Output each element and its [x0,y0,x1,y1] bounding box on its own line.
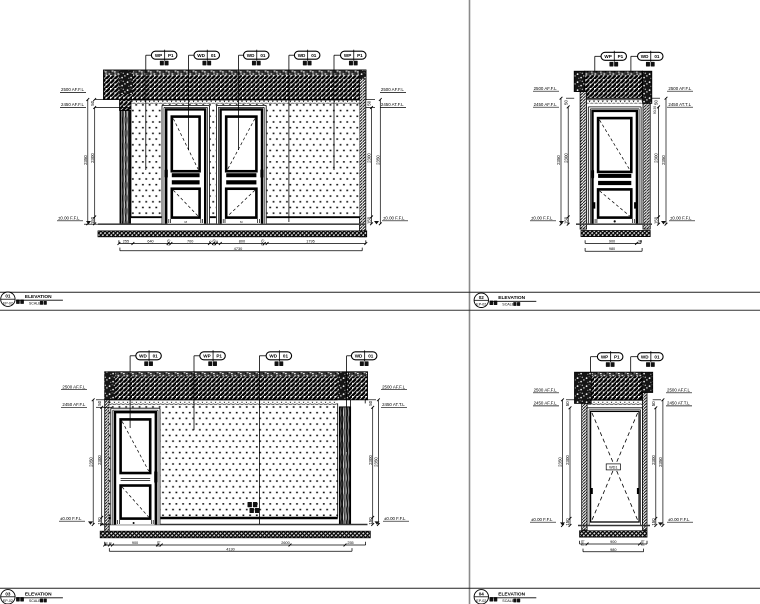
svg-text:±0.00 F.F.L: ±0.00 F.F.L [58,215,80,220]
svg-text:EP-02: EP-02 [3,599,13,603]
svg-text:±0.00 F.F.L: ±0.00 F.F.L [60,516,82,521]
svg-text:01: 01 [260,53,266,58]
svg-text:(50): (50) [640,540,644,546]
svg-text:50: 50 [565,401,570,406]
svg-text:WD1: WD1 [609,466,617,470]
svg-text:WD: WD [269,354,277,359]
svg-text:2350: 2350 [376,155,381,165]
svg-text:WP: WP [604,54,611,59]
svg-text:2350: 2350 [556,155,561,165]
svg-text:EP-02: EP-02 [476,303,486,307]
svg-text:SCALE/: SCALE/ [29,302,42,306]
svg-text:50: 50 [654,100,659,105]
svg-text:2450 AT.T.L: 2450 AT.T.L [667,401,690,406]
svg-text:900: 900 [132,541,138,545]
svg-text:2300: 2300 [97,455,102,465]
svg-text:WP: WP [344,53,351,58]
svg-text:04: 04 [479,591,485,596]
svg-text:WD: WD [641,54,649,59]
svg-text:(50): (50) [156,541,160,547]
svg-text:980: 980 [610,548,616,552]
svg-text:01: 01 [5,294,11,299]
svg-text:2450 AF.F.L: 2450 AF.F.L [61,102,85,107]
svg-text:2450 AT.T.L: 2450 AT.T.L [668,102,691,107]
svg-text:±0.00 F.F.L: ±0.00 F.F.L [531,517,553,522]
svg-text:2500 AF.F.L: 2500 AF.F.L [381,87,405,92]
svg-text:ELEVATION: ELEVATION [498,295,525,301]
svg-text:700: 700 [187,240,193,244]
svg-text:2350: 2350 [374,457,379,467]
svg-text:P1: P1 [216,354,222,359]
svg-text:WP: WP [601,354,608,359]
svg-text:±0.00 F.F.L: ±0.00 F.F.L [531,215,553,220]
svg-text:P1: P1 [168,53,174,58]
svg-text:ELEVATION: ELEVATION [498,592,525,598]
svg-text:EP-02: EP-02 [3,301,13,305]
svg-text:2450 AT.T.L: 2450 AT.T.L [382,402,405,407]
svg-text:75: 75 [108,542,112,546]
svg-text:150: 150 [97,517,102,525]
svg-text:2350: 2350 [558,457,563,467]
svg-text:50: 50 [368,400,373,405]
svg-text:(50): (50) [167,239,171,245]
svg-text:50: 50 [90,100,95,105]
svg-text:EP-02: EP-02 [476,599,486,603]
svg-text:2450 AT.F.L: 2450 AT.F.L [381,102,404,107]
svg-text:150: 150 [367,216,372,224]
svg-text:2500 AF.F.L: 2500 AF.F.L [382,384,406,389]
svg-text:WD: WD [139,354,147,359]
svg-text:255: 255 [123,240,129,244]
svg-text:2350: 2350 [83,155,88,165]
svg-text:(50): (50) [261,239,265,245]
svg-text:01: 01 [368,354,374,359]
svg-text:WP: WP [203,354,210,359]
svg-text:WD: WD [355,354,363,359]
svg-text:(50): (50) [580,540,584,546]
svg-text:01: 01 [654,54,660,59]
svg-text:P1: P1 [614,354,620,359]
svg-text:150: 150 [654,216,659,224]
svg-text:WP: WP [155,53,162,58]
svg-text:2350: 2350 [661,155,666,165]
svg-text:50: 50 [367,100,372,105]
svg-text:2300: 2300 [368,455,373,465]
svg-text:2500 AF.F.L: 2500 AF.F.L [534,387,558,392]
svg-text:150: 150 [565,518,570,526]
svg-text:150: 150 [368,517,373,525]
svg-text:2450 AF.F.L: 2450 AF.F.L [534,401,558,406]
svg-text:WD: WD [298,53,306,58]
svg-text:02: 02 [479,295,485,300]
svg-text:2350: 2350 [88,457,93,467]
svg-text:2300: 2300 [654,153,659,163]
svg-text:2500 AF.F.L: 2500 AF.F.L [667,387,691,392]
svg-text:2300: 2300 [90,153,95,163]
svg-text:640: 640 [147,240,153,244]
svg-text:±0.00 F.F.L: ±0.00 F.F.L [668,517,690,522]
svg-text:255: 255 [347,541,353,545]
svg-text:SCALE/: SCALE/ [502,303,515,307]
svg-text:WD: WD [641,354,649,359]
svg-text:SCALE/: SCALE/ [502,599,515,603]
svg-text:03: 03 [5,591,11,596]
svg-text:150: 150 [563,216,568,224]
svg-text:980: 980 [609,247,615,251]
svg-text:150: 150 [90,216,95,224]
svg-text:75: 75 [215,241,219,245]
svg-text:2300: 2300 [565,455,570,465]
svg-text:2500 AF.F.L: 2500 AF.F.L [62,384,86,389]
svg-text:2300: 2300 [651,455,656,465]
svg-text:WD: WD [247,53,255,58]
svg-text:2300: 2300 [563,153,568,163]
svg-text:30: 30 [638,239,642,243]
svg-text:50: 50 [563,100,568,105]
svg-text:900: 900 [610,540,616,544]
svg-text:01: 01 [153,354,159,359]
svg-text:4130: 4130 [226,547,234,551]
svg-text:2350: 2350 [658,457,663,467]
svg-text:2500 AF.F.L: 2500 AF.F.L [668,86,692,91]
svg-text:2300: 2300 [367,153,372,163]
svg-text:01: 01 [311,53,317,58]
svg-text:ELEVATION: ELEVATION [25,592,52,598]
svg-text:SCALE/: SCALE/ [29,599,42,603]
svg-text:150: 150 [651,518,656,526]
svg-text:50: 50 [651,401,656,406]
svg-text:1795: 1795 [306,240,314,244]
svg-text:90.30: 90.30 [653,106,657,114]
svg-text:P1: P1 [357,53,363,58]
svg-text:01: 01 [654,354,660,359]
svg-text:800: 800 [239,240,245,244]
svg-text:2500 AF.F.L: 2500 AF.F.L [61,87,85,92]
svg-text:2500 AF.F.L: 2500 AF.F.L [534,86,558,91]
svg-text:2450 AF.F.L: 2450 AF.F.L [534,102,558,107]
svg-text:900: 900 [609,239,615,243]
svg-text:P1: P1 [618,54,624,59]
svg-text:±0.00 F.F.L: ±0.00 F.F.L [384,516,406,521]
svg-text:4730: 4730 [234,247,242,251]
svg-text:01: 01 [283,354,289,359]
svg-text:01: 01 [211,53,217,58]
svg-text:WD: WD [197,53,205,58]
svg-text:2600: 2600 [281,541,289,545]
svg-text:50: 50 [97,400,102,405]
svg-text:±0.00 F.F.L: ±0.00 F.F.L [670,215,692,220]
svg-text:2450 AF.F.L: 2450 AF.F.L [62,402,86,407]
svg-text:ELEVATION: ELEVATION [25,294,52,300]
svg-text:±0.00 F.F.L: ±0.00 F.F.L [383,215,405,220]
